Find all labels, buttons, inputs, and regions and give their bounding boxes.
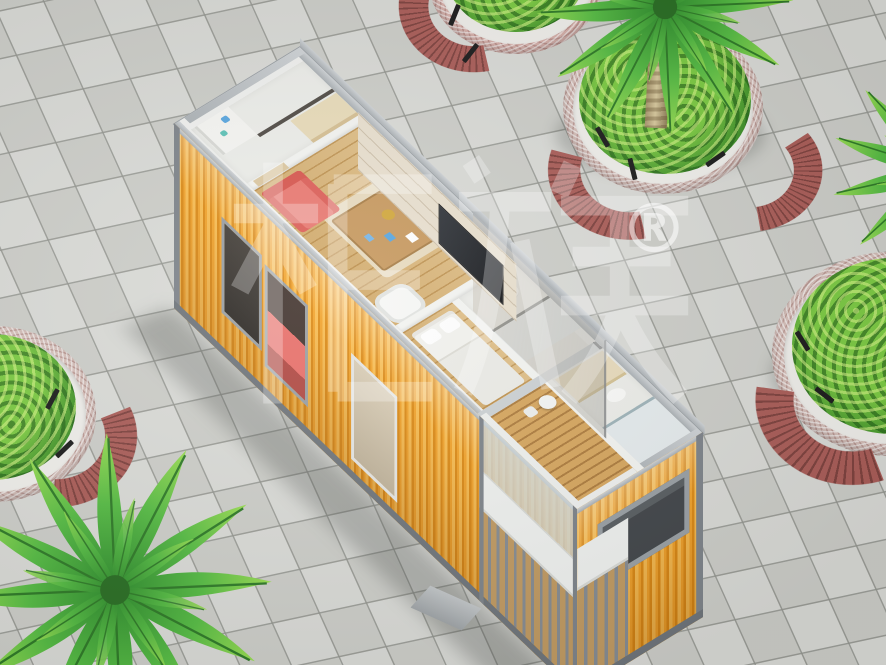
palm-canopy-top [530,0,800,142]
window-2 [265,264,308,407]
render-scene: 柜族 ® [0,0,886,665]
porch-post-1 [479,416,483,605]
left-wall-corner-post [174,123,180,314]
window-1 [222,217,262,352]
palm-right-edge [825,55,886,285]
end-wall-corner-post [696,432,703,621]
palm-bottom-left [0,425,280,665]
